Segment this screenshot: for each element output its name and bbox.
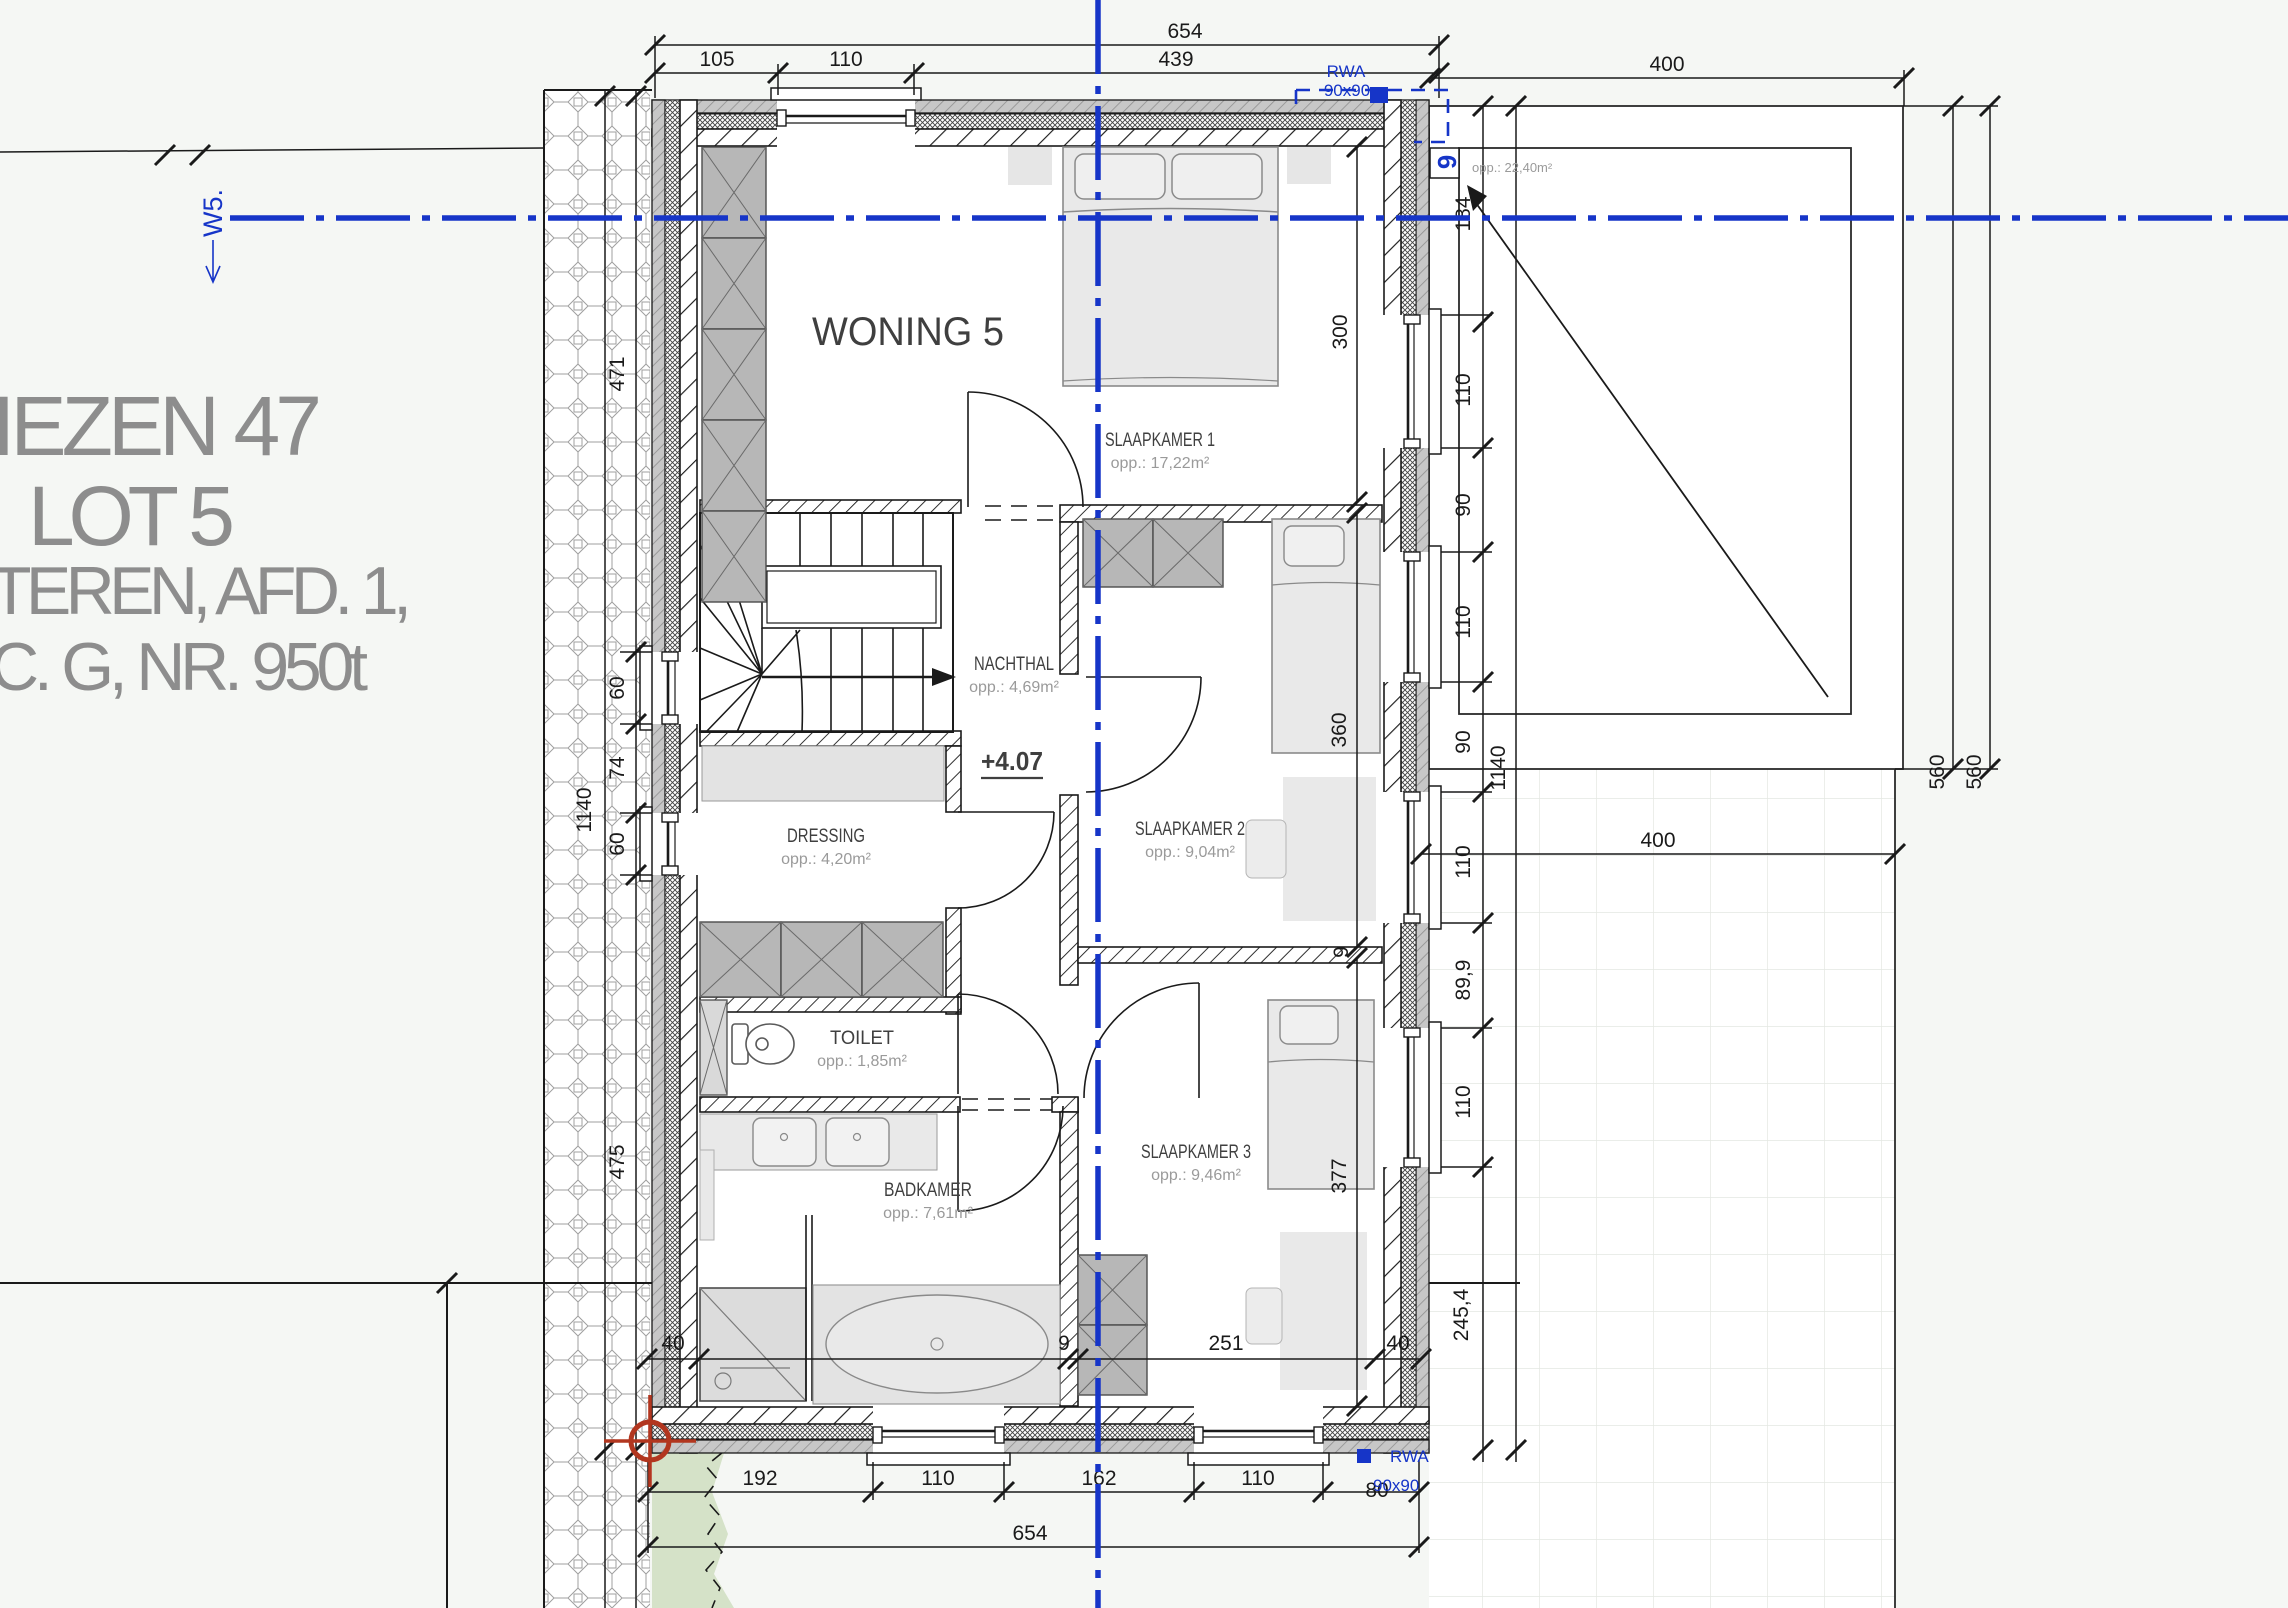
svg-text:40: 40 bbox=[661, 1332, 684, 1355]
svg-text:560: 560 bbox=[1963, 754, 1986, 789]
svg-text:471: 471 bbox=[606, 356, 629, 391]
svg-text:105: 105 bbox=[699, 48, 734, 71]
svg-text:110: 110 bbox=[1452, 605, 1475, 638]
svg-text:opp.: 4,20m²: opp.: 4,20m² bbox=[781, 851, 872, 868]
svg-text:89,9: 89,9 bbox=[1452, 960, 1475, 1001]
svg-text:192: 192 bbox=[742, 1467, 777, 1490]
svg-text:SLAAPKAMER 2: SLAAPKAMER 2 bbox=[1135, 819, 1245, 840]
svg-text:1140: 1140 bbox=[573, 787, 596, 832]
svg-text:110: 110 bbox=[1452, 1085, 1475, 1118]
svg-text:184: 184 bbox=[1452, 196, 1475, 231]
svg-text:opp.: 7,61m²: opp.: 7,61m² bbox=[883, 1205, 974, 1222]
svg-text:C. G, NR. 950t: C. G, NR. 950t bbox=[0, 629, 368, 705]
svg-text:opp.: 17,22m²: opp.: 17,22m² bbox=[1111, 455, 1210, 472]
svg-text:90: 90 bbox=[1452, 730, 1475, 753]
svg-text:opp.: 22,40m²: opp.: 22,40m² bbox=[1472, 160, 1553, 175]
svg-text:IEZEN 47: IEZEN 47 bbox=[0, 379, 322, 473]
svg-text:110: 110 bbox=[921, 1467, 954, 1490]
svg-text:9: 9 bbox=[1058, 1332, 1070, 1355]
svg-text:654: 654 bbox=[1012, 1522, 1047, 1545]
svg-text:90x90: 90x90 bbox=[1324, 81, 1370, 100]
svg-text:110: 110 bbox=[1452, 373, 1475, 406]
svg-text:110: 110 bbox=[1452, 845, 1475, 878]
svg-text:TOILET: TOILET bbox=[830, 1028, 894, 1049]
svg-text:377: 377 bbox=[1328, 1158, 1351, 1193]
svg-text:TEREN, AFD. 1,: TEREN, AFD. 1, bbox=[0, 553, 412, 629]
svg-text:+4.07: +4.07 bbox=[981, 746, 1043, 776]
svg-text:90x90: 90x90 bbox=[1373, 1476, 1419, 1495]
svg-text:360: 360 bbox=[1328, 712, 1351, 747]
svg-text:251: 251 bbox=[1208, 1332, 1243, 1355]
svg-text:opp.: 9,04m²: opp.: 9,04m² bbox=[1145, 844, 1236, 861]
svg-text:RWA: RWA bbox=[1327, 62, 1366, 81]
svg-text:BADKAMER: BADKAMER bbox=[884, 1180, 972, 1201]
svg-text:110: 110 bbox=[829, 48, 862, 71]
svg-text:opp.: 4,69m²: opp.: 4,69m² bbox=[969, 679, 1060, 696]
svg-text:654: 654 bbox=[1167, 20, 1202, 43]
svg-text:W5.: W5. bbox=[198, 189, 228, 237]
svg-text:400: 400 bbox=[1649, 53, 1684, 76]
svg-text:opp.: 1,85m²: opp.: 1,85m² bbox=[817, 1053, 908, 1070]
svg-text:400: 400 bbox=[1640, 829, 1675, 852]
svg-text:SLAAPKAMER 3: SLAAPKAMER 3 bbox=[1141, 1142, 1251, 1163]
svg-text:LOT 5: LOT 5 bbox=[28, 469, 235, 563]
svg-text:60: 60 bbox=[606, 832, 629, 855]
svg-text:opp.: 9,46m²: opp.: 9,46m² bbox=[1151, 1167, 1242, 1184]
svg-text:NACHTHAL: NACHTHAL bbox=[974, 654, 1054, 675]
svg-text:560: 560 bbox=[1926, 754, 1949, 789]
svg-text:475: 475 bbox=[606, 1144, 629, 1179]
svg-text:60: 60 bbox=[606, 676, 629, 699]
svg-text:300: 300 bbox=[1329, 314, 1352, 349]
svg-text:1140: 1140 bbox=[1487, 745, 1510, 790]
svg-text:90: 90 bbox=[1452, 493, 1475, 516]
svg-text:9: 9 bbox=[1330, 946, 1353, 958]
svg-text:6: 6 bbox=[1432, 155, 1462, 169]
svg-text:DRESSING: DRESSING bbox=[787, 826, 865, 847]
svg-text:WONING 5: WONING 5 bbox=[812, 310, 1004, 354]
svg-text:40: 40 bbox=[1386, 1332, 1409, 1355]
svg-text:245,4: 245,4 bbox=[1450, 1288, 1473, 1341]
svg-text:110: 110 bbox=[1241, 1467, 1274, 1490]
svg-text:SLAAPKAMER 1: SLAAPKAMER 1 bbox=[1105, 430, 1215, 451]
svg-text:RWA: RWA bbox=[1390, 1447, 1429, 1466]
svg-text:74: 74 bbox=[606, 756, 629, 780]
svg-text:439: 439 bbox=[1158, 48, 1193, 71]
